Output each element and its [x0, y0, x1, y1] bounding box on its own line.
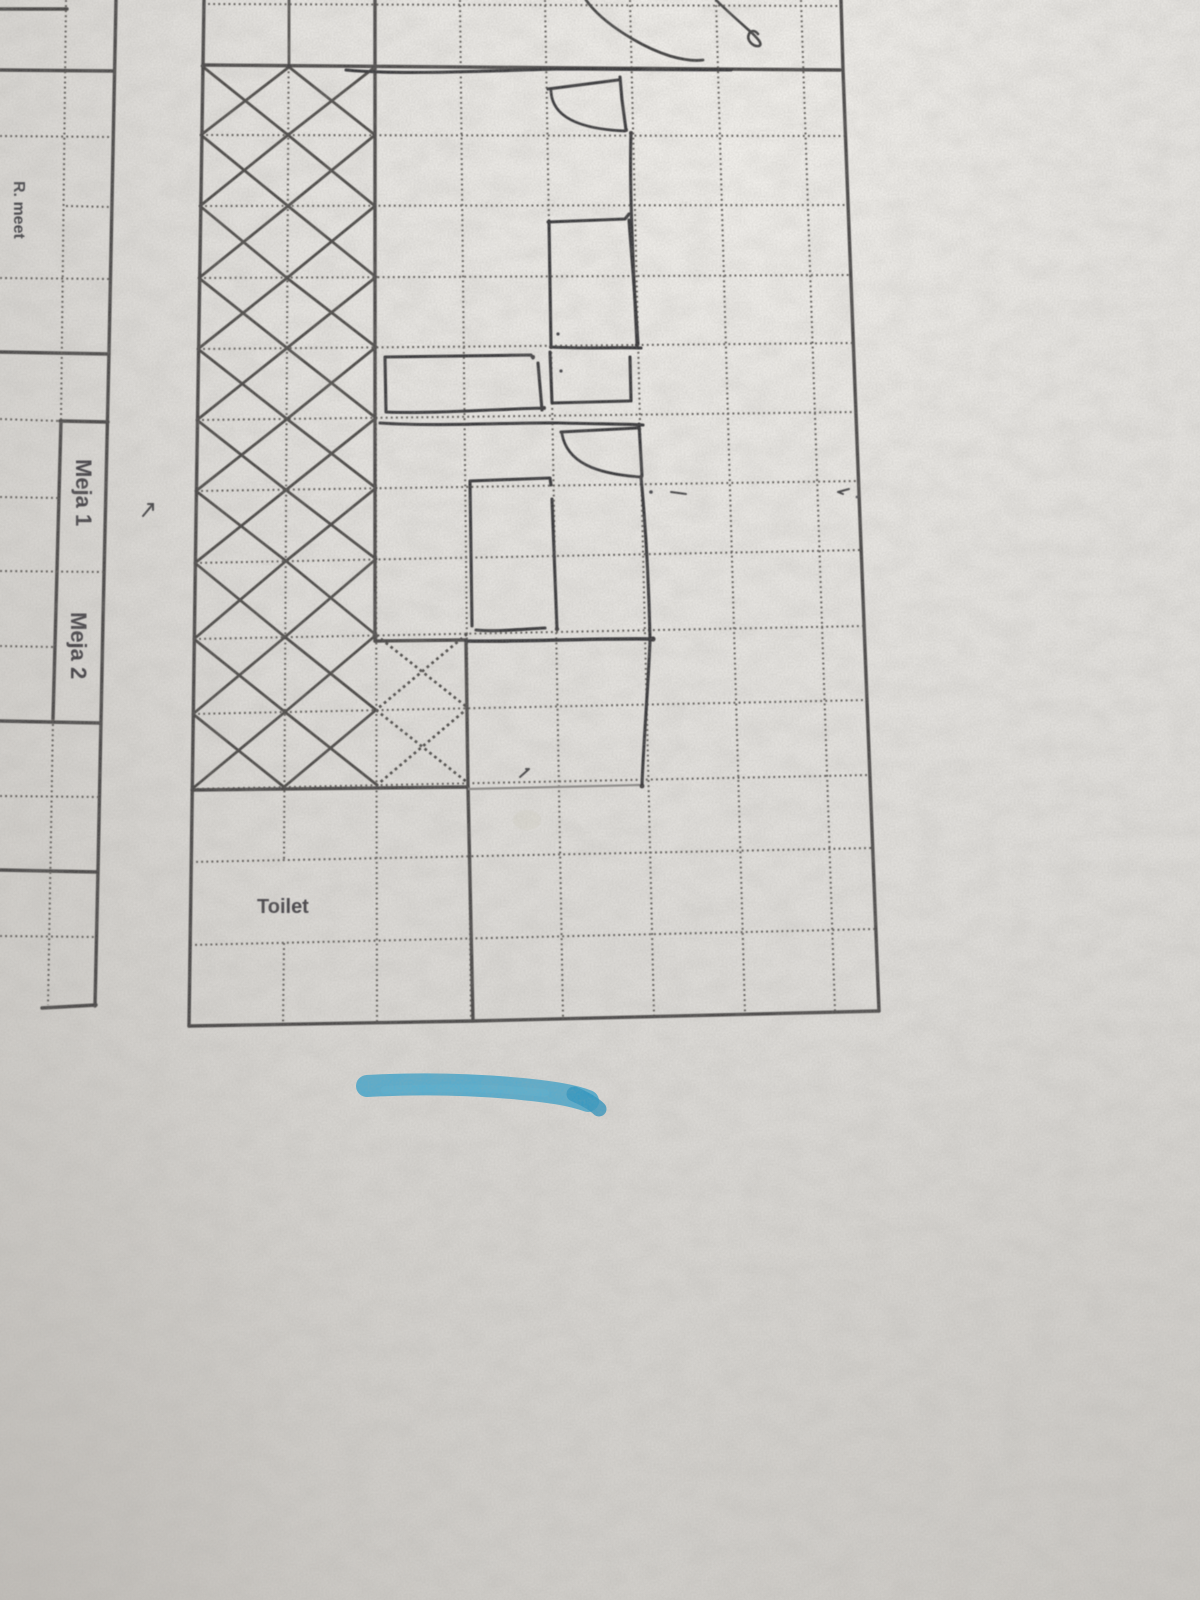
svg-text:Meja 2: Meja 2: [66, 612, 91, 679]
svg-text:Meja 1: Meja 1: [71, 459, 96, 526]
svg-text:Toilet: Toilet: [257, 896, 309, 918]
svg-text:R. meet: R. meet: [10, 181, 27, 239]
